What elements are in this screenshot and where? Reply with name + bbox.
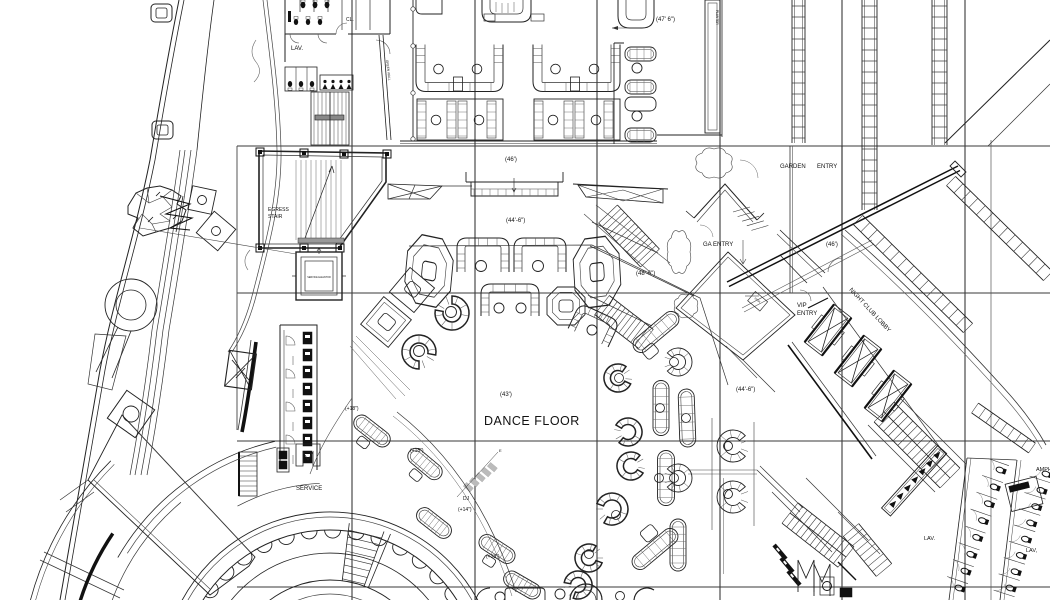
svg-text:LAV,: LAV, xyxy=(1026,548,1037,554)
svg-text:E: E xyxy=(499,448,502,453)
svg-text:AMPH: AMPH xyxy=(1036,467,1050,473)
svg-text:VIP: VIP xyxy=(797,303,807,309)
svg-text:EGRESS: EGRESS xyxy=(268,207,290,213)
svg-text:GA ENTRY: GA ENTRY xyxy=(703,242,733,248)
svg-text:SERVICE ELEVATOR: SERVICE ELEVATOR xyxy=(307,276,331,279)
svg-text:(+18"): (+18") xyxy=(410,448,424,454)
svg-text:(46'): (46') xyxy=(505,157,517,163)
svg-text:GARDEN: GARDEN xyxy=(780,164,806,170)
svg-text:LAV.: LAV. xyxy=(924,536,935,542)
svg-text:(+14"): (+14") xyxy=(458,507,472,513)
svg-text:(46'): (46') xyxy=(826,242,838,248)
svg-text:(44'-6"): (44'-6") xyxy=(506,218,525,224)
svg-text:PLANTER: PLANTER xyxy=(715,10,719,25)
svg-text:STAIR: STAIR xyxy=(268,214,283,220)
svg-text:LAV.: LAV. xyxy=(291,46,303,52)
svg-text:SERVICE: SERVICE xyxy=(296,486,322,492)
svg-text:(43'): (43') xyxy=(500,392,512,398)
svg-text:(47' 6"): (47' 6") xyxy=(656,17,675,23)
svg-text:(44'-6"): (44'-6") xyxy=(736,387,755,393)
svg-text:ENTRY: ENTRY xyxy=(817,164,837,170)
svg-text:ENTRY: ENTRY xyxy=(797,311,817,317)
svg-text:CL.: CL. xyxy=(346,17,354,23)
svg-text:(+18"): (+18") xyxy=(345,406,359,412)
svg-text:DANCE FLOOR: DANCE FLOOR xyxy=(484,414,580,428)
